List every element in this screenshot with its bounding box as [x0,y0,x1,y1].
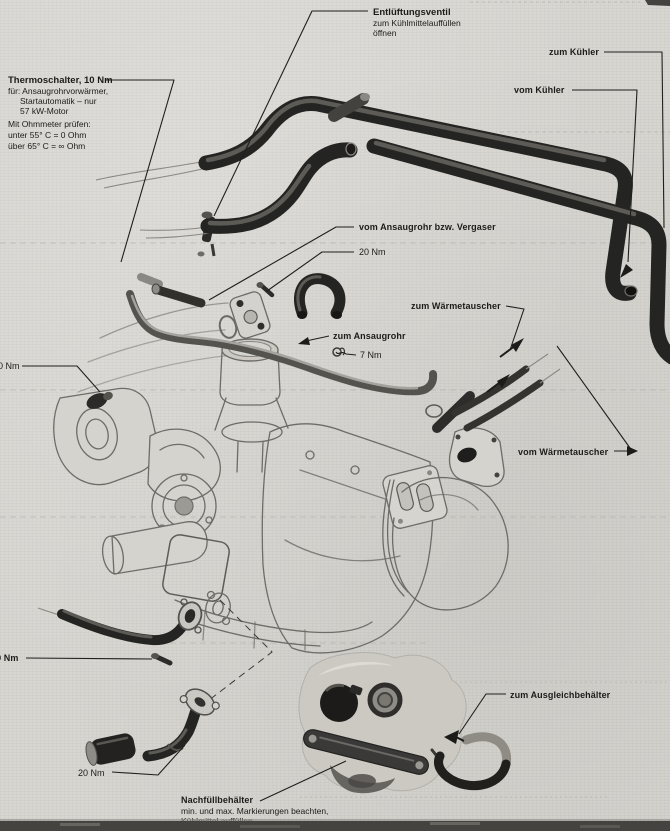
label-thermoschalter-l5: unter 55° C = 0 Ohm [8,130,86,140]
label-20nm-bottom: 20 Nm [78,768,105,778]
leader-7nm [336,352,356,355]
label-vom-waermetauscher: vom Wärmetauscher [518,447,609,457]
label-zum-kuehler: zum Kühler [549,47,599,57]
reservoir-opening [370,685,400,715]
leader-zum-ansaugrohr [298,336,329,345]
label-vom-kuehler: vom Kühler [514,85,565,95]
pipe-junction-flange [217,290,271,340]
u-bend-hose [297,277,342,319]
label-zum-ansaugrohr: zum Ansaugrohr [333,331,406,341]
label-10nm-lower: 10 Nm [0,653,19,663]
exhaust-flange [381,464,448,530]
spring-clip [333,348,344,356]
label-vom-ansaugrohr: vom Ansaugrohr bzw. Vergaser [359,222,496,232]
bottom-flange [203,590,234,625]
label-thermoschalter-l2: Startautomatik – nur [20,96,97,106]
label-thermoschalter-l6: über 65° C = ∞ Ohm [8,141,85,151]
leader-vom-waermetauscher [557,346,638,456]
label-nachfuellbehaelter-line2: min. und max. Markierungen beachten, [181,806,328,816]
label-nachfuellbehaelter-title: Nachfüllbehälter [181,795,254,805]
label-entlueftungsventil-title: Entlüftungsventil [373,7,451,18]
label-thermoschalter-l4: Mit Ohmmeter prüfen: [8,119,91,129]
label-thermoschalter-l1: für: Ansaugrohrvorwärmer, [8,86,108,96]
elbow-gasket-flange [179,682,222,721]
cooling-system-diagram: Entlüftungsventil zum Kühlmittelauffülle… [0,0,670,831]
label-thermoschalter-title: Thermoschalter, 10 Nm [8,75,113,86]
heater-hoses [426,338,560,428]
engine-block-lineart [54,303,508,710]
label-entlueftungsventil-line3: öffnen [373,28,397,38]
label-10nm-left: 10 Nm [0,361,20,371]
leader-10nm-lower [26,658,152,659]
label-7nm: 7 Nm [360,350,382,360]
label-entlueftungsventil-line2: zum Kühlmittelauffüllen [373,18,461,28]
label-zum-ausgleichbehaelter: zum Ausgleichbehälter [510,690,611,700]
label-zum-waermetauscher: zum Wärmetauscher [411,301,501,311]
label-20nm-top: 20 Nm [359,247,386,257]
elbow-hose-assembly [84,682,222,767]
flow-arrow-icon-1 [500,338,524,357]
drain-bolt [151,653,170,663]
lower-coolant-pipe [38,599,205,663]
manual-diagram-page: Entlüftungsventil zum Kühlmittelauffülle… [0,0,670,831]
label-thermoschalter-l3: 57 kW-Motor [20,106,69,116]
leader-thermoschalter [106,80,174,262]
coolant-metal-pipe [130,294,433,391]
connector-hose-piece [141,277,201,303]
